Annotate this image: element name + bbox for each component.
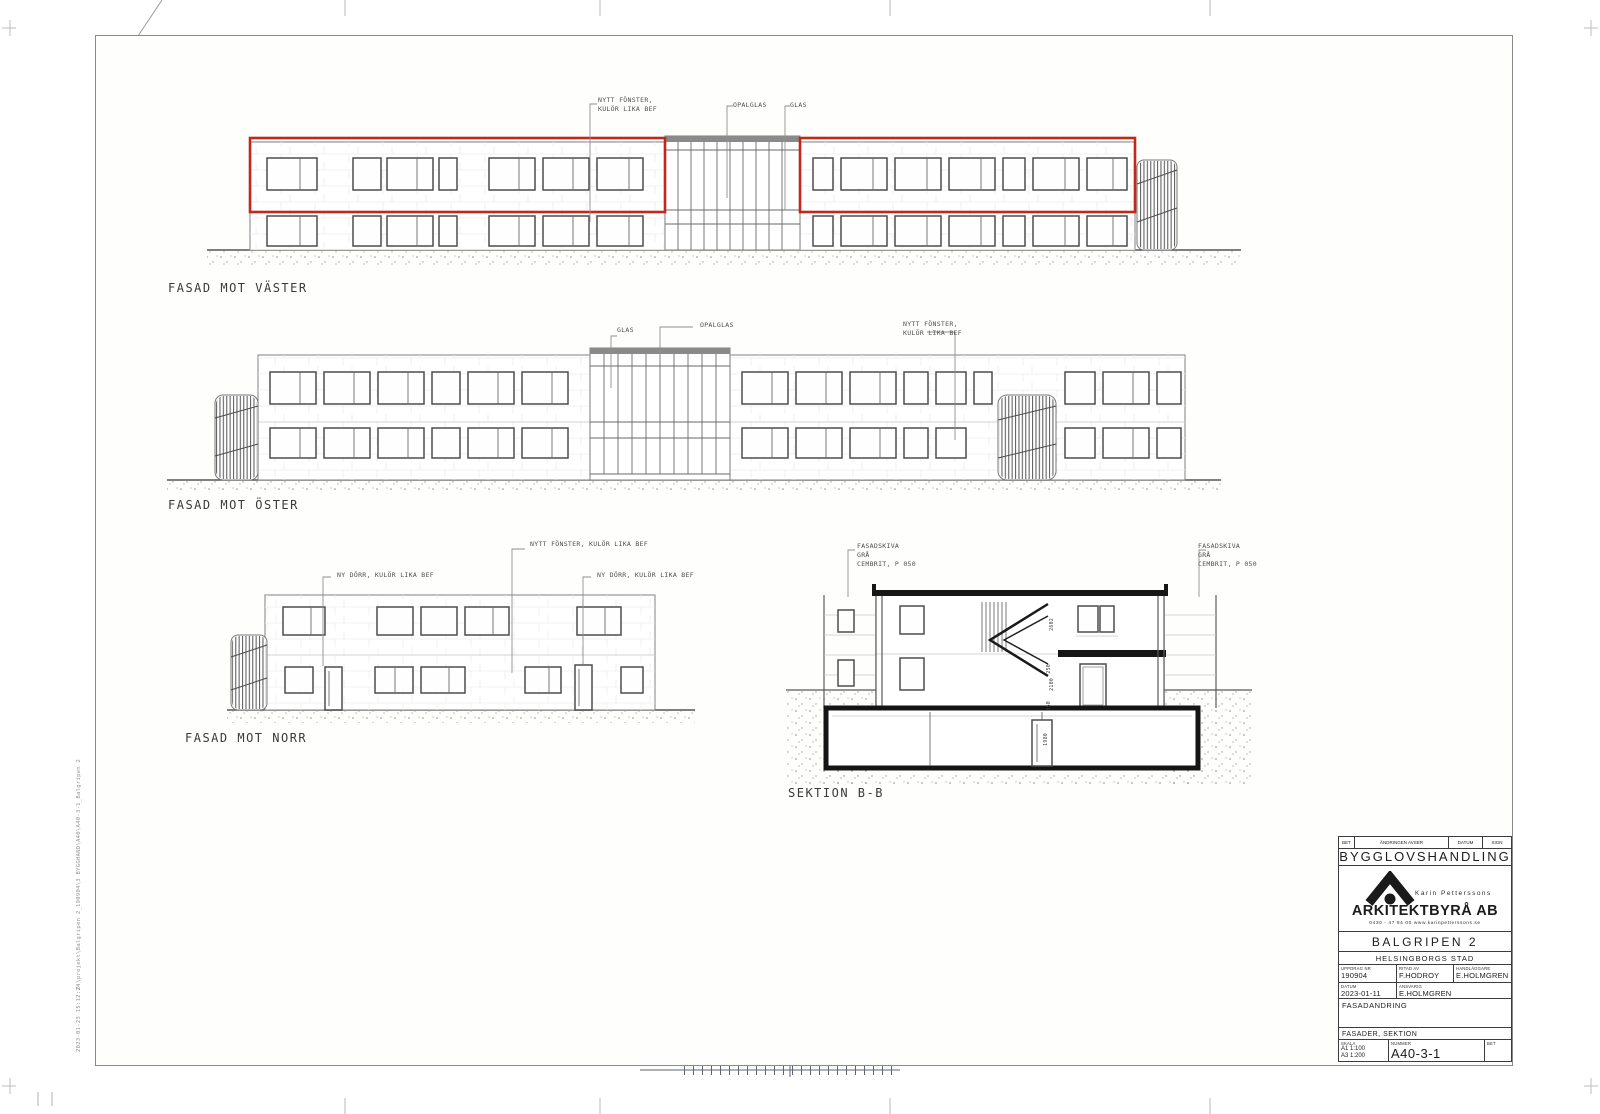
elevation-east-label: FASAD MOT ÖSTER [168,498,299,512]
rev-andringen-header: ÄNDRINGEN AVSER [1355,837,1449,848]
datum-field: DATUM 2023-01-11 [1339,983,1397,998]
sheet-content-title: FASADER, SEKTION [1339,1028,1511,1040]
annotation-fasadskiva-right: FASADSKIVA GRÅ CEMBRIT, P 050 [1198,542,1257,569]
dim-2100: 2100 [1049,678,1055,691]
spiral-stair [1137,160,1177,250]
handlaggare-value: E.HOLMGREN [1456,971,1509,980]
door-basement [1032,720,1052,766]
mid-slab [1058,650,1166,657]
datum-value: 2023-01-11 [1341,989,1394,998]
section-bb-label: SEKTION B-B [788,786,884,800]
fields-row-2: DATUM 2023-01-11 ANSVARIG E.HOLMGREN [1339,983,1511,999]
firm-owner-name: Karin Petterssons [1415,890,1492,897]
drawing-number: A40-3-1 [1391,1046,1482,1060]
annotation-glas-east: GLAS [617,326,634,335]
uppdrag-value: 190904 [1341,971,1394,980]
change-title: FASADANDRING [1339,999,1511,1028]
annotation-line: CEMBRIT, P 050 [857,560,916,569]
elevation-north-label: FASAD MOT NORR [185,731,307,745]
annotation-line: GRÅ [1198,551,1257,560]
bet-field: BET [1485,1040,1511,1061]
annotation-line: FASADSKIVA [1198,542,1257,551]
fields-row-bottom: SKALA A1 1:100 A3 1:200 NUMMER A40-3-1 B… [1339,1040,1511,1061]
ansvarig-value: E.HOLMGREN [1399,989,1509,998]
rev-sign-header: SIGN [1483,837,1511,848]
annotation-line: GRÅ [857,551,916,560]
annotation-ny-dorr-left: NY DÖRR, KULÖR LIKA BEF [337,571,434,580]
elevation-north-drawing [225,535,705,735]
section-bb-drawing [780,540,1260,795]
ritad-av-value: F.HODROY [1399,971,1451,980]
skala-a3: A3 1:200 [1341,1053,1386,1060]
annotation-ny-dorr-right: NY DÖRR, KULÖR LIKA BEF [597,571,694,580]
annotation-line: KULÖR LIKA BEF [598,105,657,114]
skala-field: SKALA A1 1:100 A3 1:200 [1339,1040,1389,1061]
door-right [575,665,592,710]
firm-logo-block: Karin Petterssons ARKITEKTBYRÅ AB 0430 -… [1339,866,1511,932]
elevation-west-drawing [205,98,1245,278]
dim-1980: 1980 [1043,733,1049,746]
revision-header-row: BET ÄNDRINGEN AVSER DATUM SIGN [1339,837,1511,849]
fields-row-1: UPPDRAG NR 190904 RITAD AV F.HODROY HAND… [1339,965,1511,983]
handlaggare-field: HANDLÄGGARE E.HOLMGREN [1454,965,1511,982]
elevation-east-drawing [165,318,1225,503]
annotation-line: FASADSKIVA [857,542,916,551]
spiral-stair-left [215,395,258,480]
firm-contact: 0430 - 47 84 00 www.karinpetterssons.se [1339,921,1511,926]
annotation-line: NYTT FÖNSTER, [598,96,657,105]
annotation-line: KULÖR LIKA BEF [903,329,962,338]
annotation-nytt-fonster-west: NYTT FÖNSTER, KULÖR LIKA BEF [598,96,657,114]
spiral-stair-right [998,395,1056,480]
title-block: BET ÄNDRINGEN AVSER DATUM SIGN BYGGLOVSH… [1338,836,1512,1062]
plot-date-stamp: 2023-01-23 15:12:24 [76,983,82,1052]
bet-label: BET [1487,1041,1509,1046]
elevation-west-label: FASAD MOT VÄSTER [168,281,308,295]
skala-a1: A1 1:100 [1341,1046,1386,1053]
ritad-av-field: RITAD AV F.HODROY [1397,965,1454,982]
bygglov-stamp: BYGGLOVSHANDLING [1339,849,1511,867]
annotation-line: NYTT FÖNSTER, [903,320,962,329]
roof-slab [874,590,1166,596]
annotation-nytt-fonster-north: NYTT FÖNSTER, KULÖR LIKA BEF [530,540,648,549]
door-upper [1080,664,1106,708]
annotation-glas-west: GLAS [790,101,807,110]
uppdrag-field: UPPDRAG NR 190904 [1339,965,1397,982]
plot-path-stamp: Z:\projekt\Balgripen 2_190904\3 BYGGHAND… [76,759,82,990]
basement-box [826,708,1198,768]
project-name: BALGRIPEN 2 [1339,932,1511,951]
rev-bet-header: BET [1339,837,1355,848]
door-left [325,667,342,710]
annotation-fasadskiva-left: FASADSKIVA GRÅ CEMBRIT, P 050 [857,542,916,569]
rev-datum-header: DATUM [1449,837,1483,848]
ansvarig-field: ANSVARIG E.HOLMGREN [1397,983,1511,998]
firm-name: ARKITEKTBYRÅ AB [1339,903,1511,919]
dim-2602: 2602 [1049,618,1055,631]
annotation-line: CEMBRIT, P 050 [1198,560,1257,569]
project-city: HELSINGBORGS STAD [1339,952,1511,966]
dim-250: 250 [1046,664,1052,674]
dim-350: 350 [1046,701,1052,711]
nummer-field: NUMMER A40-3-1 [1389,1040,1485,1061]
annotation-opalglas-east: OPALGLAS [700,321,734,330]
spiral-stair [231,635,267,710]
annotation-nytt-fonster-east: NYTT FÖNSTER, KULÖR LIKA BEF [903,320,962,338]
drawing-sheet: NYTT FÖNSTER, KULÖR LIKA BEF OPALGLAS GL… [0,0,1600,1114]
annotation-opalglas-west: OPALGLAS [733,101,767,110]
